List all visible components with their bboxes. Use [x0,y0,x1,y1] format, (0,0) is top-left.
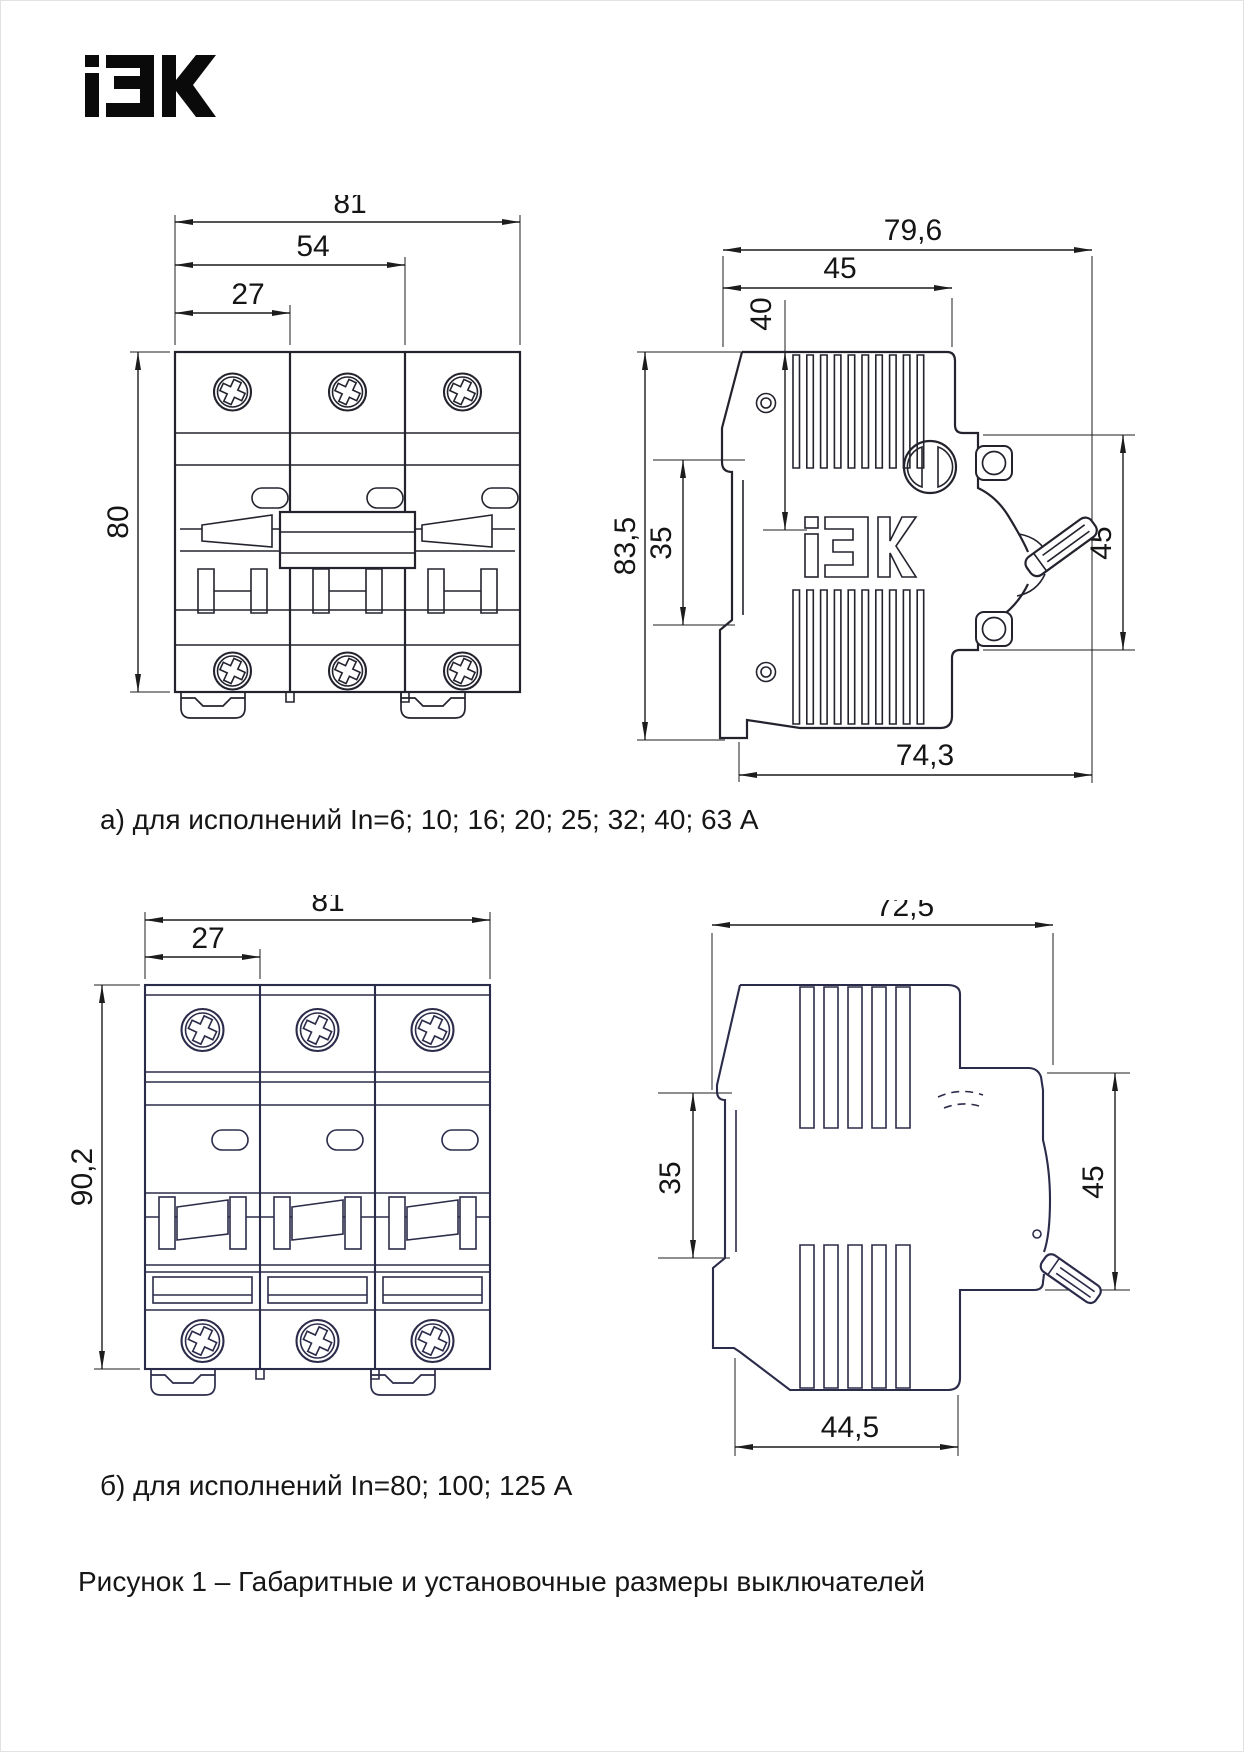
side-view-a: 79,6 45 40 83,5 35 45 74,3 [595,200,1140,800]
dim-height-a: 80 [102,505,135,538]
logo-i-dot [85,55,99,67]
dim-din-channel-b: 35 [654,1161,687,1194]
terminal-cage-top [976,446,1012,480]
pivot-dot [1033,1230,1041,1238]
indicator-windows [212,1130,478,1150]
dim-width-total-a: 81 [333,195,366,220]
embossed-iek-logo [805,517,916,577]
dim-depth-base-b: 44,5 [821,1411,879,1444]
side-view-b: 72,5 35 45 44,5 [600,900,1160,1480]
side-a-dimensions: 79,6 45 40 83,5 35 45 74,3 [609,214,1135,783]
screw-icon [182,1320,224,1362]
screw-icon [214,374,251,411]
pole-latches [198,569,497,613]
arc-chute-band [153,1277,482,1303]
screw-icon [444,653,481,690]
toggle-handle-assembly [145,1193,490,1249]
indicator-windows [252,488,518,508]
rivet-circles [757,394,776,682]
screw-icon [182,1009,224,1051]
screw-icon [297,1320,339,1362]
dim-depth-body-a: 45 [823,252,856,285]
dim-height-b: 90,2 [70,1148,99,1206]
bottom-stubs [286,692,409,702]
screw-icon [329,374,366,411]
front-a-dimensions: 81 54 27 80 [102,195,520,692]
vent-slots-top [800,987,910,1128]
screw-icon [214,653,251,690]
side-a-body [720,352,1100,738]
figure-caption: Рисунок 1 – Габаритные и установочные ра… [78,1566,925,1598]
logo-k [162,55,216,117]
dim-depth-base-a: 74,3 [896,739,954,772]
dim-depth-total-b: 72,5 [876,900,934,923]
logo-i-bar [85,73,99,117]
screw-icon [297,1009,339,1051]
dim-depth-total-a: 79,6 [884,214,942,247]
din-clip [151,1369,215,1395]
hidden-detail [938,1091,983,1108]
logo-e [106,55,154,117]
dim-width-two-modules-a: 54 [296,230,329,263]
front-a-body [175,352,520,702]
bottom-stubs [256,1369,379,1379]
dim-width-total-b: 81 [311,895,344,918]
caption-variant-b: б) для исполнений In=80; 100; 125 А [100,1470,572,1502]
toggle-lever [1038,1252,1104,1306]
vent-slots-top [793,355,924,468]
screw-icon [329,653,366,690]
dim-handle-offset-a: 40 [745,297,778,330]
toggle-handle-assembly [180,512,515,568]
din-clip [371,1369,435,1395]
din-clip [181,692,245,718]
front-view-b: 81 27 90,2 [70,895,530,1415]
front-b-dimensions: 81 27 90,2 [70,895,490,1369]
side-b-body [713,985,1104,1390]
iek-logo [85,52,230,127]
front-view-a: 81 54 27 80 [100,195,560,735]
adjust-screw-head [904,441,956,493]
terminal-screws-b [182,1009,454,1362]
dim-width-module-b: 27 [191,922,224,955]
datasheet-page: 81 54 27 80 [0,0,1244,1752]
caption-variant-a: а) для исполнений In=6; 10; 16; 20; 25; … [100,804,759,836]
vent-slots-bottom [793,590,924,724]
screw-icon [444,374,481,411]
vent-slots-bottom [800,1245,910,1388]
terminal-cage-bottom [976,612,1012,646]
screw-icon [412,1009,454,1051]
screw-icon [412,1320,454,1362]
din-clip [401,692,465,718]
dim-width-module-a: 27 [231,278,264,311]
dim-front-height-b: 45 [1077,1165,1110,1198]
dim-height-total-a: 83,5 [609,517,642,575]
dim-din-channel-a: 35 [645,526,678,559]
